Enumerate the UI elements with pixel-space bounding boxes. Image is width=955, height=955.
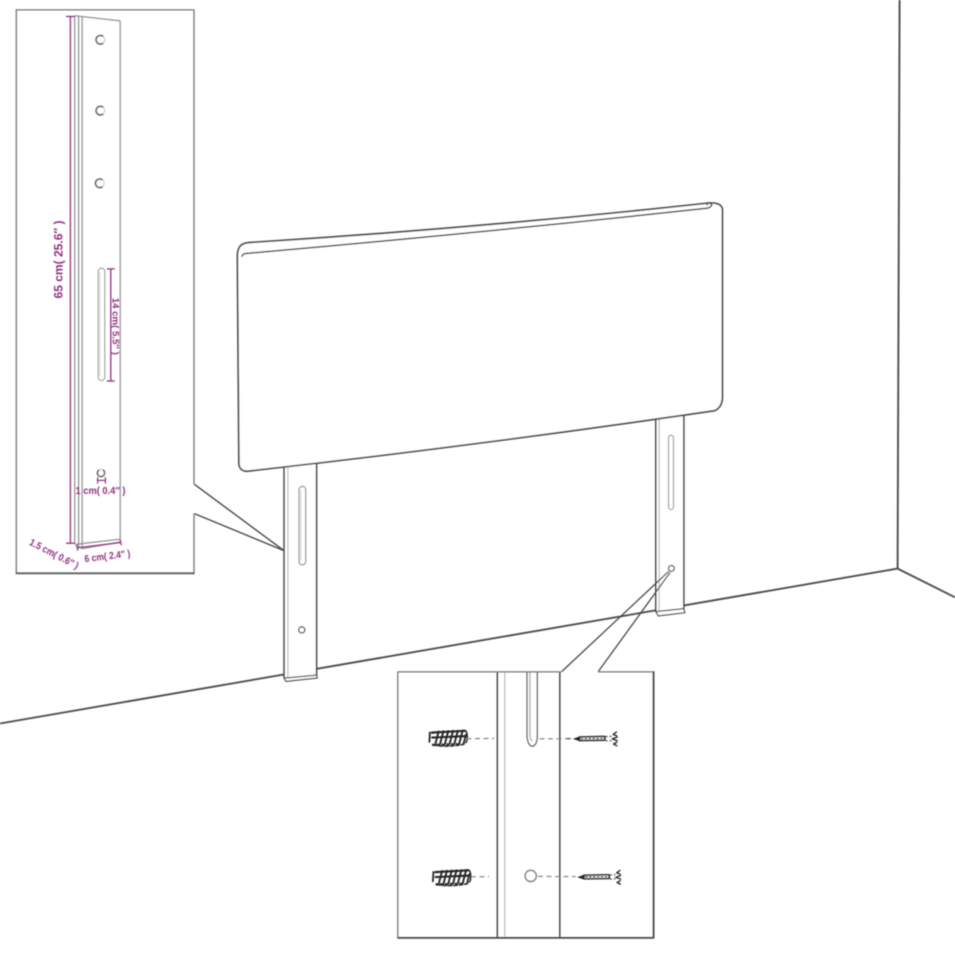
svg-text:14 cm( 5.5″ ): 14 cm( 5.5″ ) <box>110 298 121 355</box>
svg-text:1 cm( 0.4″ ): 1 cm( 0.4″ ) <box>76 486 126 497</box>
svg-text:65 cm( 25.6″ ): 65 cm( 25.6″ ) <box>52 221 66 299</box>
